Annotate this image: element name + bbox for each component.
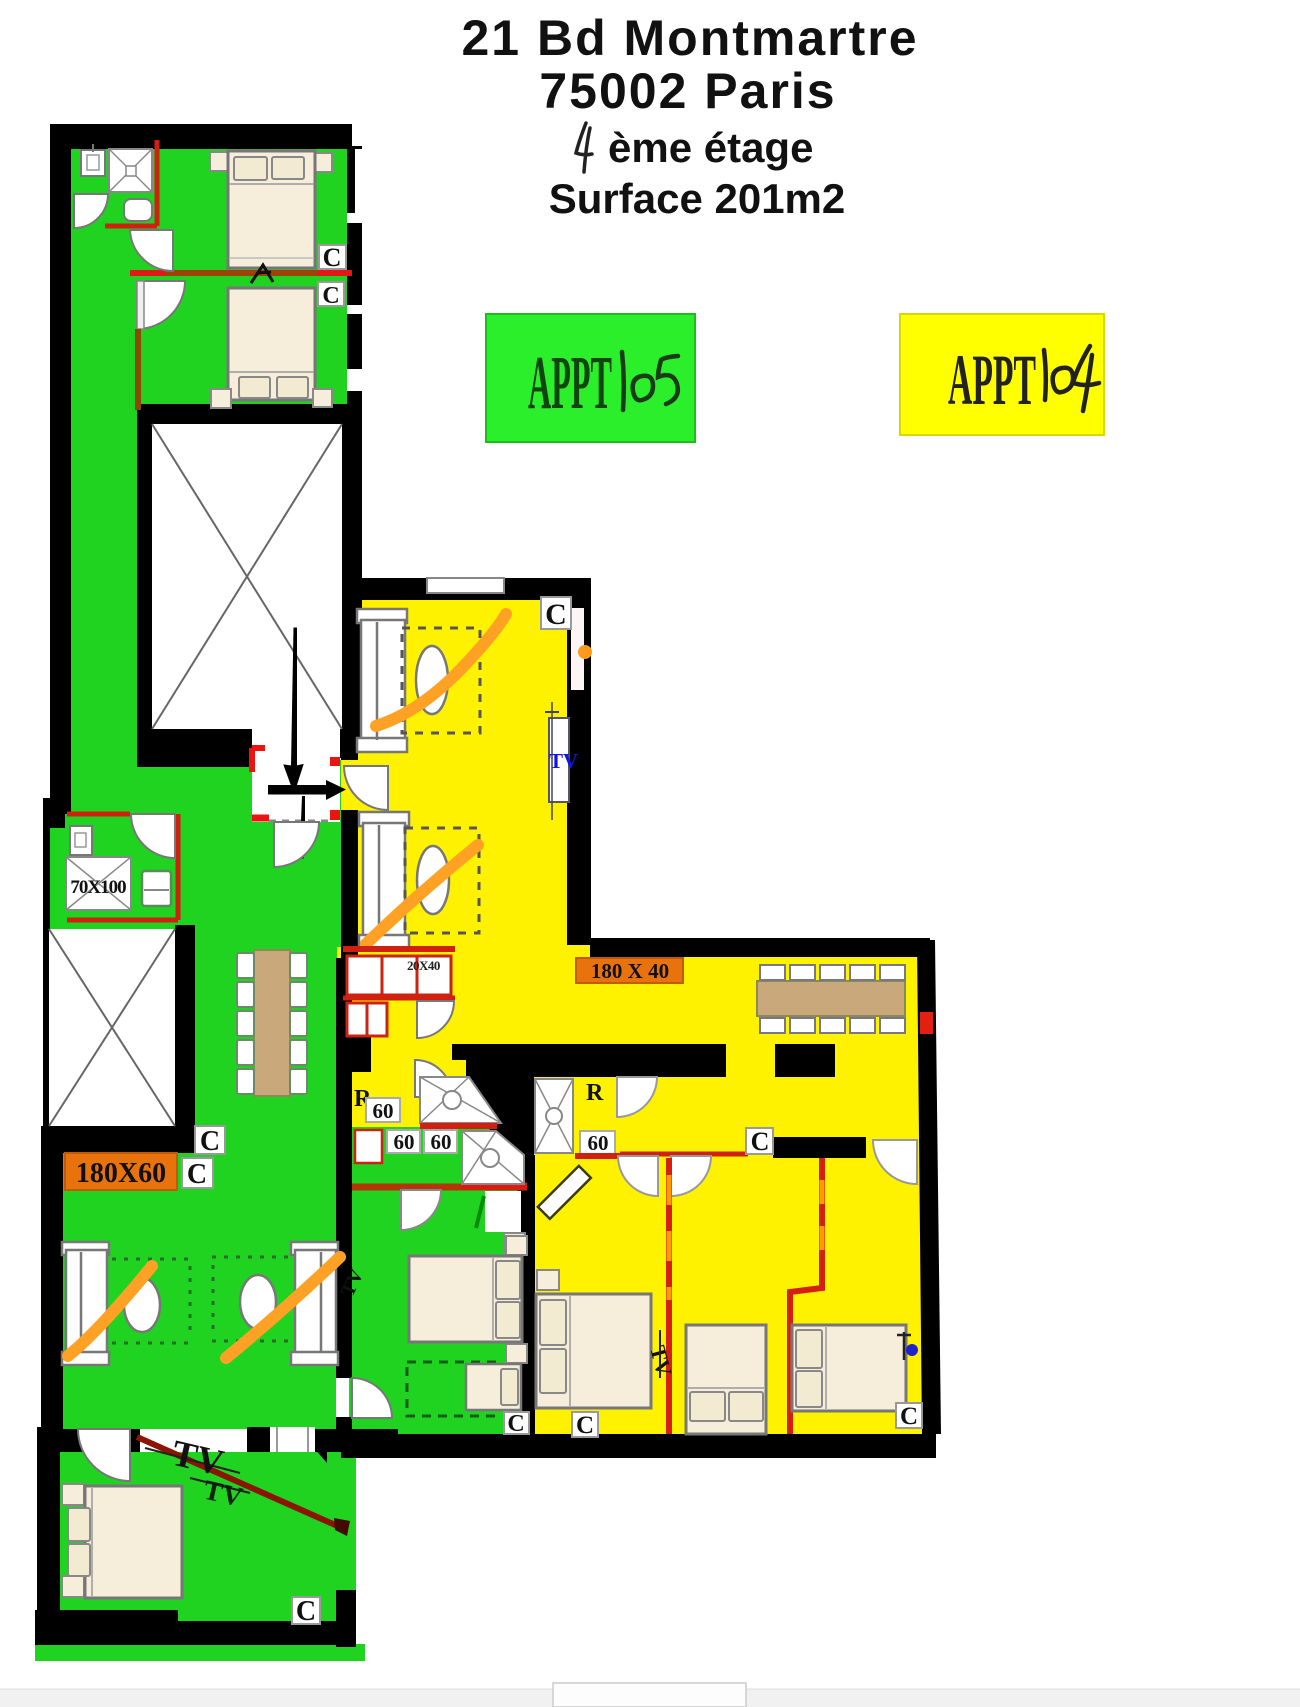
svg-text:60: 60 — [431, 1130, 452, 1154]
svg-text:21 Bd Montmartre: 21 Bd Montmartre — [461, 10, 918, 66]
svg-text:R: R — [586, 1080, 604, 1106]
svg-text:APPT: APPT — [528, 341, 612, 425]
svg-text:APPT: APPT — [948, 340, 1036, 420]
svg-text:C: C — [507, 1411, 524, 1437]
svg-text:C: C — [322, 283, 339, 309]
svg-text:20X40: 20X40 — [407, 958, 440, 973]
svg-text:TV: TV — [549, 749, 578, 773]
svg-text:60: 60 — [394, 1130, 415, 1154]
svg-text:180X60: 180X60 — [76, 1158, 166, 1189]
svg-text:75002 Paris: 75002 Paris — [539, 63, 836, 119]
svg-text:C: C — [751, 1127, 770, 1156]
svg-text:C: C — [545, 598, 567, 631]
svg-text:C: C — [296, 1596, 316, 1627]
svg-text:70X100: 70X100 — [70, 877, 126, 898]
svg-text:C: C — [200, 1126, 220, 1157]
svg-text:Surface 201m2: Surface 201m2 — [549, 175, 846, 222]
svg-text:ème étage: ème étage — [608, 124, 813, 171]
svg-text:C: C — [323, 243, 342, 272]
svg-text:C: C — [576, 1412, 594, 1439]
svg-text:C: C — [900, 1403, 918, 1430]
svg-text:60: 60 — [588, 1131, 609, 1155]
svg-text:C: C — [187, 1159, 207, 1190]
svg-text:60: 60 — [373, 1099, 394, 1123]
svg-text:180 X 40: 180 X 40 — [591, 959, 669, 983]
